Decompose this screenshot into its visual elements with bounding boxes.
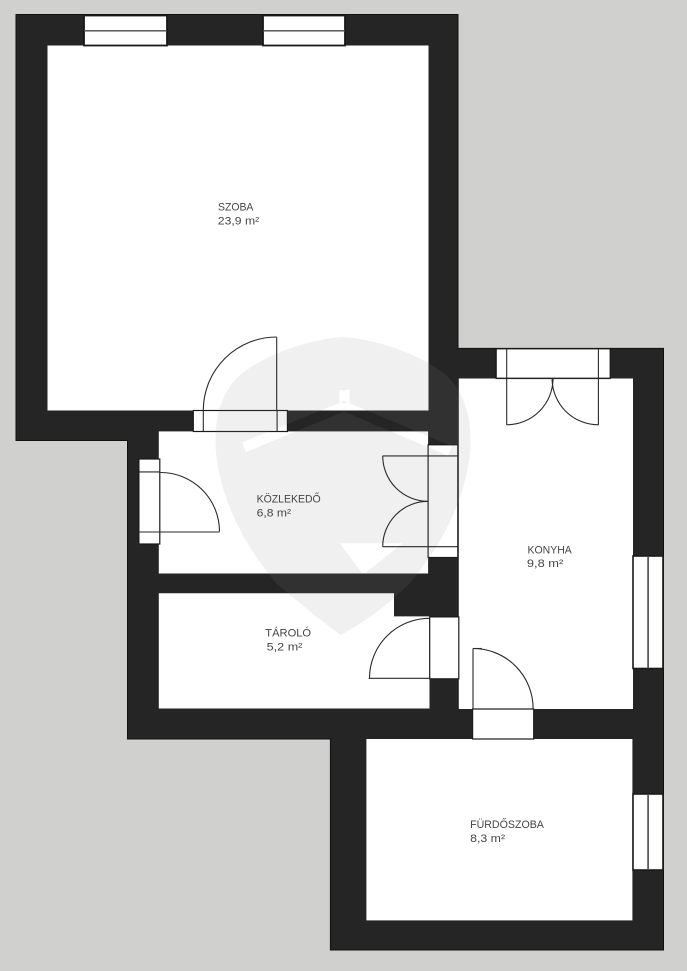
- svg-text:5,2 m²: 5,2 m²: [267, 641, 303, 653]
- svg-text:23,9 m²: 23,9 m²: [218, 215, 260, 227]
- svg-text:TÁROLÓ: TÁROLÓ: [265, 626, 311, 639]
- svg-text:FÜRDŐSZOBA: FÜRDŐSZOBA: [470, 817, 544, 831]
- svg-text:8,3 m²: 8,3 m²: [470, 833, 505, 845]
- svg-text:KÖZLEKEDŐ: KÖZLEKEDŐ: [257, 492, 322, 506]
- svg-text:6,8 m²: 6,8 m²: [257, 508, 292, 520]
- svg-text:9,8 m²: 9,8 m²: [527, 558, 564, 570]
- svg-text:KONYHA: KONYHA: [528, 545, 573, 557]
- svg-text:SZOBA: SZOBA: [218, 201, 254, 213]
